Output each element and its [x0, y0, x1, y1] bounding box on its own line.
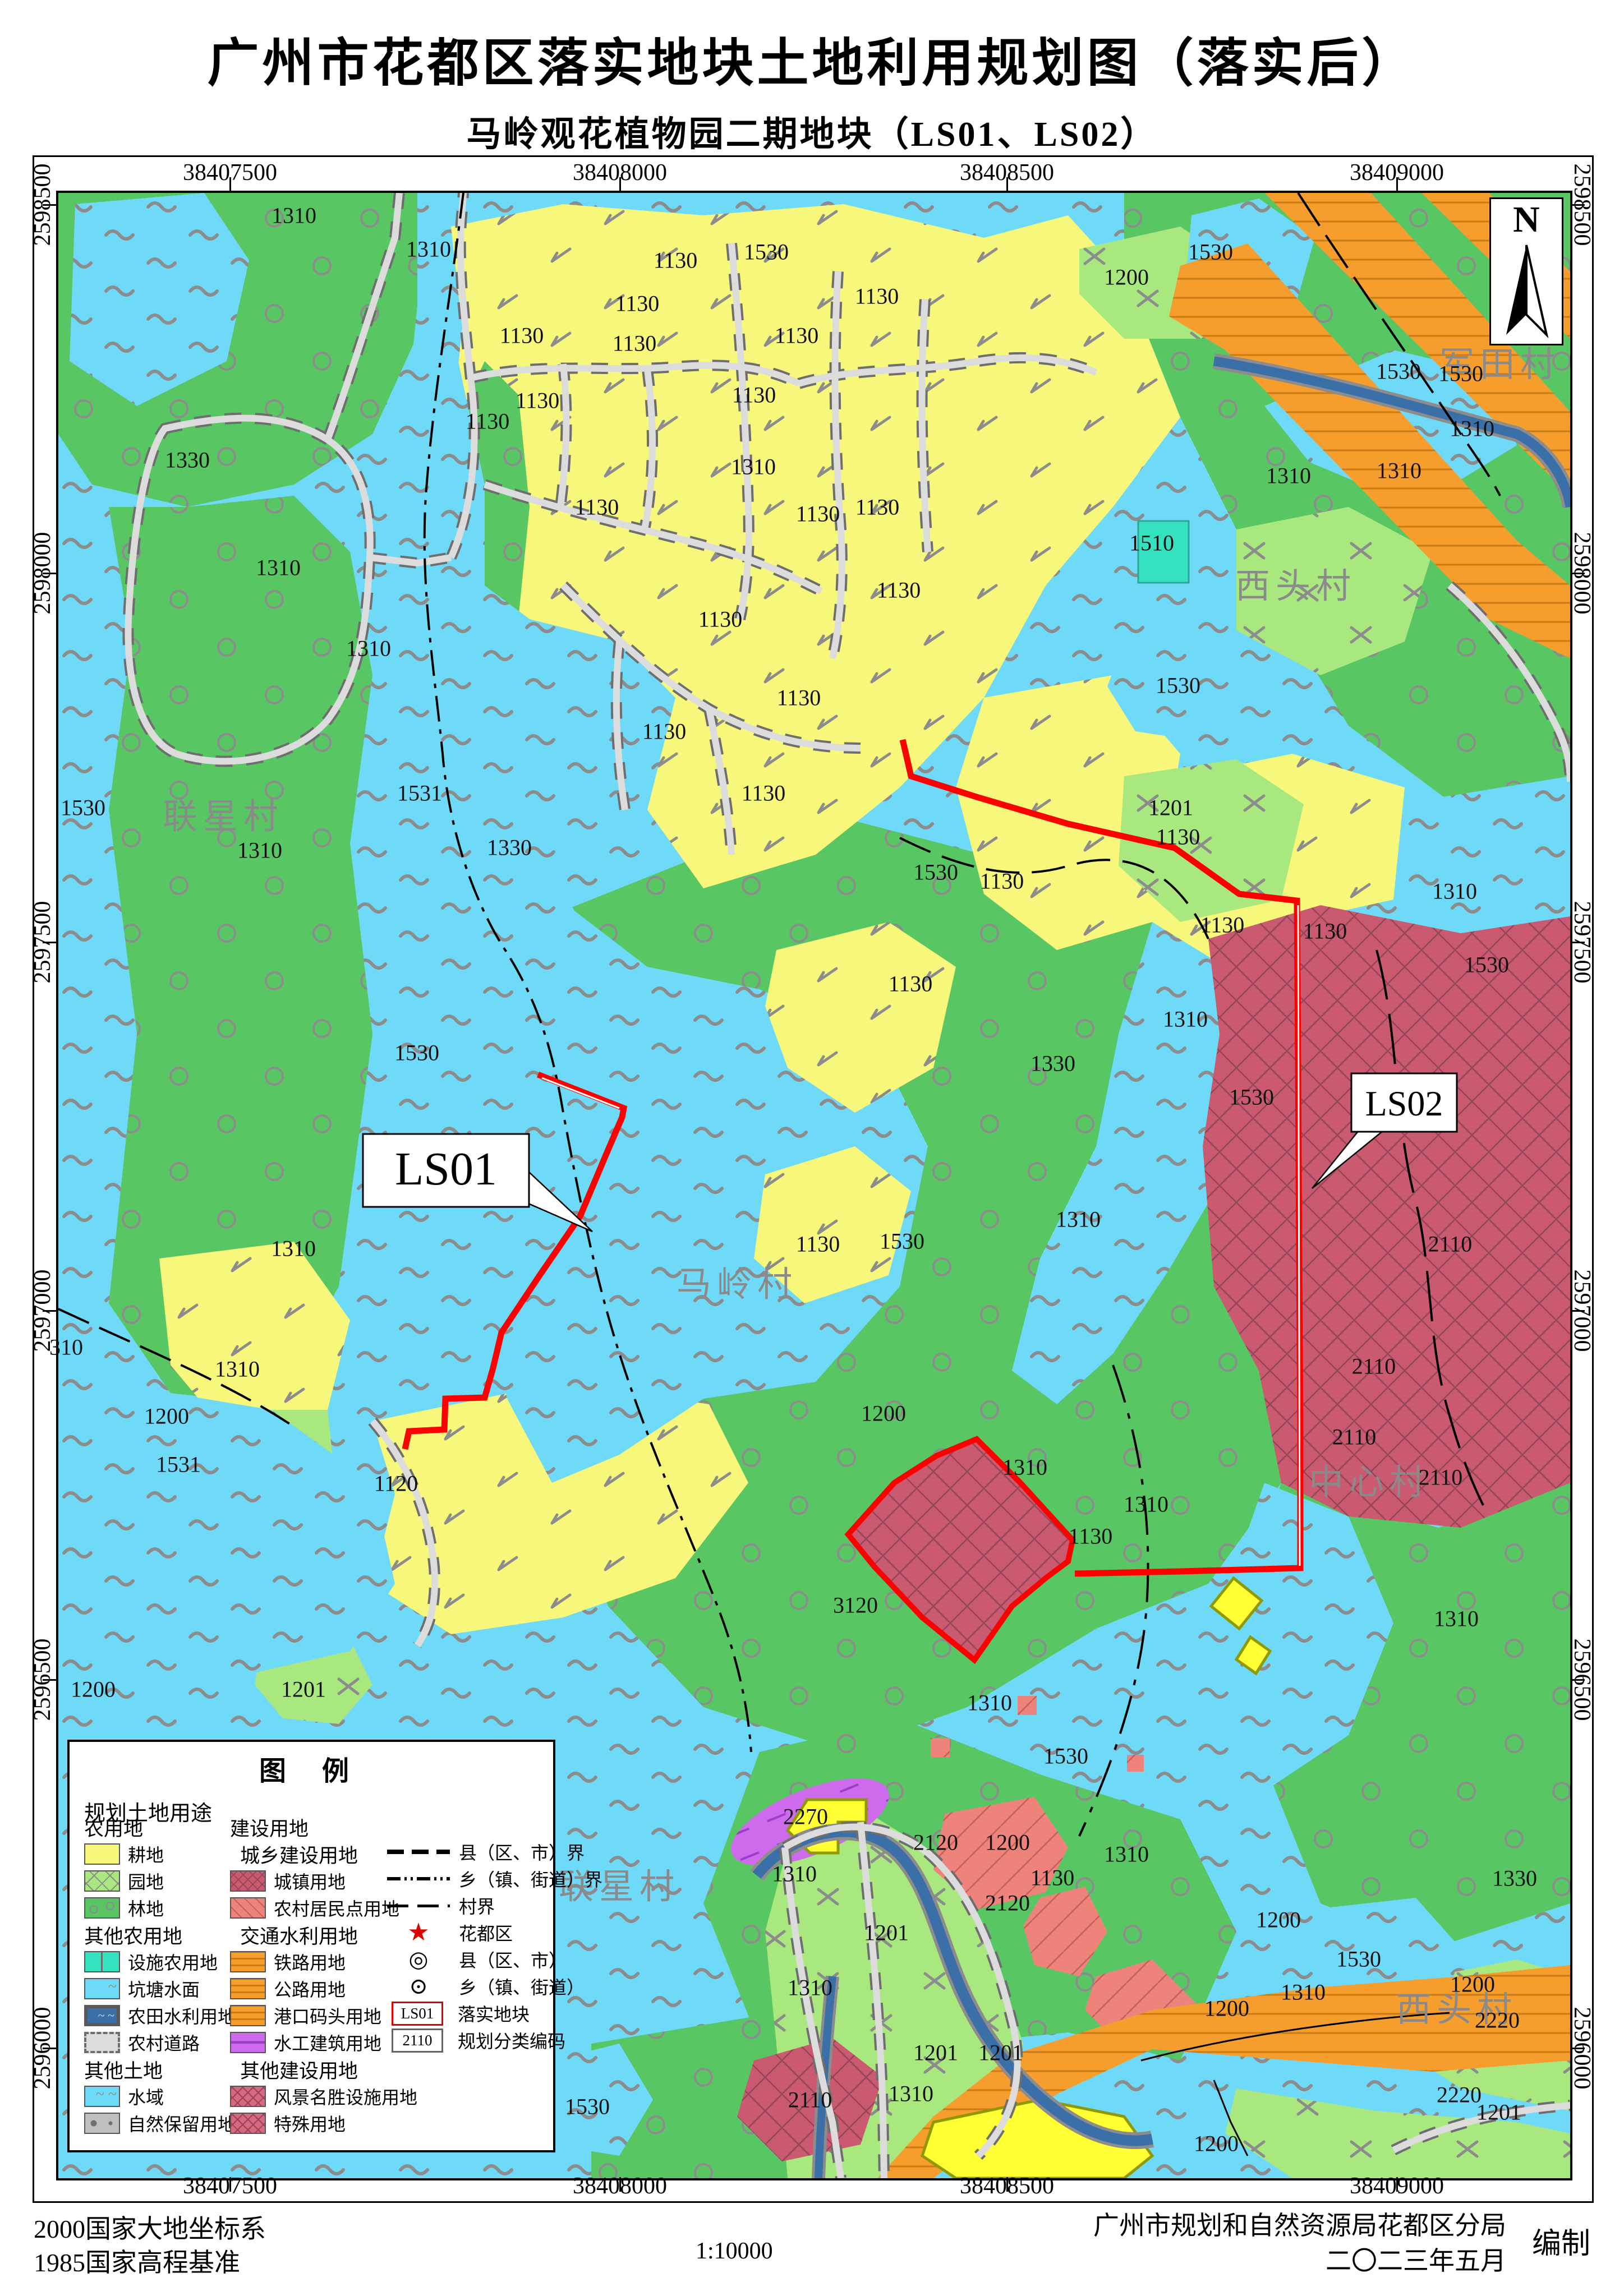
- compiled-label: 编制: [1532, 2220, 1590, 2262]
- legend-item-label: 自然保留用地: [128, 2110, 236, 2136]
- tick: [619, 177, 621, 192]
- legend-item-label: 落实地块: [458, 2000, 530, 2026]
- tick: [43, 942, 57, 943]
- tick: [1570, 942, 1585, 943]
- legend-item-label: 村界: [459, 1893, 495, 1919]
- legend: 图 例 规划土地用途 农用地 耕地 园地 林地 其他农用地 设施农用地 坑塘水面…: [67, 1740, 555, 2152]
- legend-item-label: 坑塘水面: [128, 1976, 200, 2002]
- north-arrow: N: [1489, 197, 1563, 345]
- datum-line-1: 2000国家大地坐标系: [34, 2209, 266, 2246]
- legend-item-label: 港口码头用地: [274, 2003, 381, 2028]
- tick: [1570, 1679, 1585, 1681]
- legend-group: 建设用地: [230, 1814, 387, 1841]
- legend-item-label: 园地: [128, 1868, 164, 1894]
- district-star-icon: ★: [387, 1921, 450, 1944]
- legend-item-label: 农田水利用地: [128, 2003, 236, 2028]
- legend-item-label: 水工建筑用地: [274, 2030, 381, 2055]
- tick: [43, 1310, 57, 1312]
- legend-item-label: 特殊用地: [274, 2110, 346, 2136]
- legend-item-label: 农村道路: [128, 2030, 200, 2055]
- swatch-pond-water: [84, 1978, 120, 1999]
- legend-item-label: 农村居民点用地: [274, 1895, 399, 1921]
- tick: [43, 2048, 57, 2049]
- map-scale: 1:10000: [696, 2238, 773, 2265]
- swatch-rural-residential: [230, 1897, 266, 1919]
- township-boundary-symbol: [387, 1877, 450, 1880]
- legend-title: 图 例: [70, 1749, 553, 1788]
- county-point-icon: ◎: [387, 1948, 450, 1971]
- swatch-railway: [230, 1951, 266, 1972]
- tick: [1570, 573, 1585, 574]
- swatch-scenic: [230, 2086, 266, 2107]
- tick: [1570, 1310, 1585, 1312]
- swatch-farm-water: [84, 2005, 120, 2026]
- legend-item-label: 乡（镇、街道）界: [459, 1866, 602, 1892]
- legend-item-label: 水域: [128, 2083, 164, 2109]
- legend-column-construction: 建设用地 城乡建设用地 城镇用地 农村居民点用地 交通水利用地 铁路用地 公路用…: [230, 1814, 387, 2137]
- tick: [1570, 204, 1585, 206]
- swatch-facility-agri: [84, 1951, 120, 1972]
- page-subtitle: 马岭观花植物园二期地块（LS01、LS02）: [0, 105, 1624, 156]
- village-boundary-symbol: [387, 1905, 450, 1907]
- legend-item-label: 耕地: [128, 1841, 164, 1867]
- north-arrow-icon: [1493, 241, 1560, 339]
- tick: [229, 177, 231, 192]
- tick: [1396, 2177, 1398, 2192]
- legend-item-label: 林地: [128, 1895, 164, 1921]
- swatch-cultivated-land: [84, 1843, 120, 1865]
- tick: [1396, 177, 1398, 192]
- swatch-forest-land: [84, 1897, 120, 1919]
- legend-group: 其他建设用地: [230, 2056, 387, 2083]
- legend-item-label: 花都区: [459, 1920, 513, 1945]
- tick: [1006, 2177, 1008, 2192]
- tick: [1570, 2048, 1585, 2049]
- legend-item-label: 风景名胜设施用地: [274, 2083, 417, 2109]
- swatch-water-area: [84, 2086, 120, 2107]
- swatch-hydraulic: [230, 2032, 266, 2053]
- north-label: N: [1491, 199, 1562, 241]
- legend-item-label: 县（区、市）界: [459, 1839, 585, 1865]
- swatch-rural-road: [84, 2032, 120, 2053]
- swatch-highway: [230, 1978, 266, 1999]
- plan-code-box: 2110: [392, 2028, 443, 2053]
- publisher-org: 广州市规划和自然资源局花都区分局: [1093, 2205, 1506, 2242]
- legend-group: 城乡建设用地: [230, 1841, 387, 1868]
- legend-column-agri: 农用地 耕地 园地 林地 其他农用地 设施农用地 坑塘水面 农田水利用地 农村道…: [84, 1814, 230, 2137]
- legend-group: 交通水利用地: [230, 1921, 387, 1948]
- legend-group: 其他土地: [84, 2056, 230, 2083]
- tick: [229, 2177, 231, 2192]
- plot-code-box: LS01: [392, 2002, 443, 2026]
- tick: [43, 204, 57, 206]
- legend-column-symbols: 县（区、市）界 乡（镇、街道）界 村界 ★花都区 ◎县（区、市） ⊙乡（镇、街道…: [387, 1814, 555, 2054]
- page-title: 广州市花都区落实地块土地利用规划图（落实后）: [0, 21, 1624, 96]
- datum-line-2: 1985国家高程基准: [34, 2242, 240, 2279]
- legend-item-label: 公路用地: [274, 1976, 346, 2002]
- tick: [43, 1679, 57, 1681]
- swatch-special: [230, 2113, 266, 2134]
- township-point-icon: ⊙: [387, 1975, 450, 1998]
- county-boundary-symbol: [387, 1850, 450, 1854]
- swatch-town-land: [230, 1870, 266, 1892]
- tick: [43, 573, 57, 574]
- legend-item-label: 规划分类编码: [458, 2027, 565, 2053]
- legend-group: 其他农用地: [84, 1921, 230, 1948]
- swatch-natural-reserve: [84, 2113, 120, 2134]
- legend-item-label: 县（区、市）: [459, 1947, 567, 1972]
- legend-item-label: 乡（镇、街道）: [459, 1974, 585, 1999]
- tick: [619, 2177, 621, 2192]
- tick: [1006, 177, 1008, 192]
- swatch-port: [230, 2005, 266, 2026]
- swatch-garden-land: [84, 1870, 120, 1892]
- legend-item-label: 铁路用地: [274, 1949, 346, 1975]
- plan-map-sheet: 广州市花都区落实地块土地利用规划图（落实后） 马岭观花植物园二期地块（LS01、…: [0, 0, 1624, 2296]
- publish-date: 二〇二三年五月: [1326, 2240, 1506, 2277]
- legend-item-label: 城镇用地: [274, 1868, 346, 1894]
- legend-group: 农用地: [84, 1814, 230, 1841]
- legend-item-label: 设施农用地: [128, 1949, 218, 1975]
